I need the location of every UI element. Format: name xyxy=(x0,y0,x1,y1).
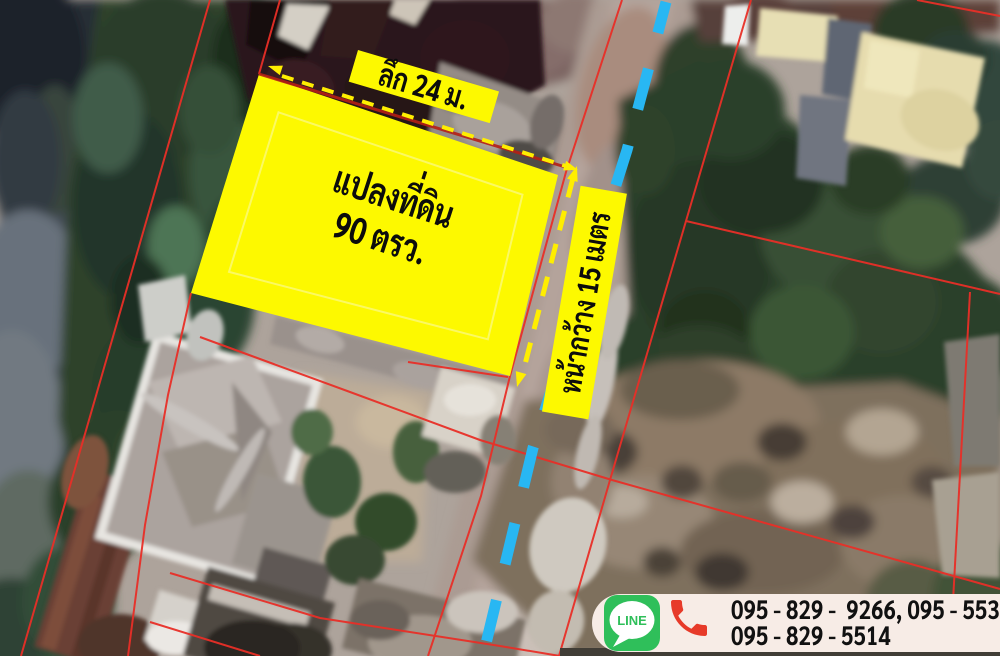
svg-text:LINE: LINE xyxy=(617,613,647,628)
